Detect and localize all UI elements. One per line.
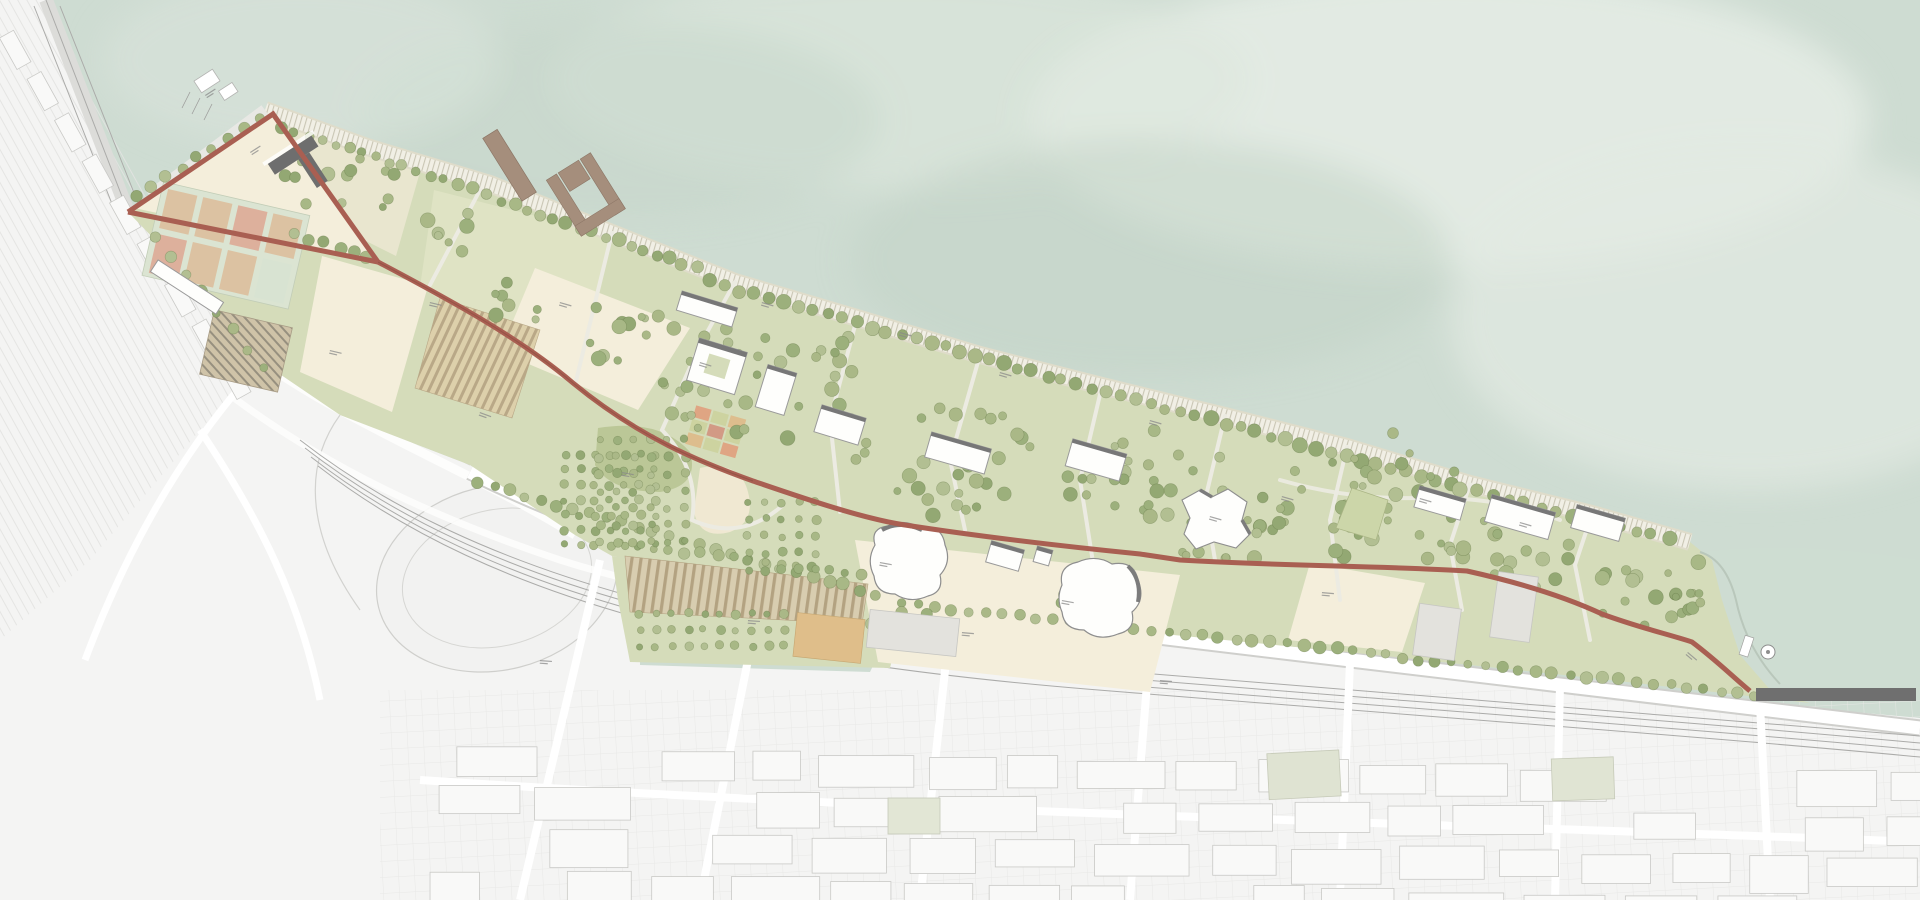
hall-west [870, 522, 947, 599]
city-block [1718, 896, 1797, 900]
city-block [757, 793, 820, 828]
city-block [1499, 850, 1558, 877]
play-court-orange [793, 613, 865, 664]
city-block [1887, 817, 1920, 846]
city-block [939, 797, 1037, 832]
hall-east [1059, 558, 1141, 637]
city-block [1797, 771, 1877, 807]
city-block [1750, 856, 1809, 894]
city-block [713, 835, 792, 864]
city-block [819, 756, 914, 788]
city-block [1199, 804, 1273, 831]
city-block [1409, 893, 1504, 900]
cove-pier-deck [1756, 688, 1916, 701]
city-block [910, 838, 975, 873]
city-block [1400, 846, 1485, 879]
city-block [1436, 764, 1508, 796]
city-block [1071, 886, 1124, 900]
city-block [430, 872, 479, 900]
city-block [904, 884, 972, 900]
city-block [1673, 854, 1730, 883]
city-block [1360, 766, 1426, 794]
museum-building [1182, 489, 1250, 549]
city-block [1213, 845, 1276, 875]
city-block [1634, 813, 1696, 839]
city-block [1095, 845, 1189, 876]
city-block [662, 752, 735, 781]
city-block [1254, 885, 1304, 900]
city-block [1176, 762, 1236, 790]
city-block [1582, 855, 1651, 884]
city-block [439, 785, 520, 813]
city-block [1891, 772, 1920, 800]
city-block [995, 840, 1074, 867]
city-block [989, 885, 1059, 900]
city-block [1295, 802, 1370, 832]
city-block [930, 757, 997, 789]
city-block [1291, 850, 1381, 885]
city-block [1124, 803, 1176, 833]
city-block [1805, 818, 1863, 851]
city-block [535, 788, 631, 821]
city-block [567, 871, 631, 900]
city-block [1007, 756, 1057, 788]
city-block [831, 882, 891, 900]
city-block [652, 877, 714, 900]
lighthouse-center [1766, 650, 1770, 654]
masterplan-canvas [0, 0, 1920, 900]
city-block [1453, 806, 1544, 835]
city-block [1827, 858, 1917, 886]
city-block [731, 877, 819, 900]
city-block [1077, 761, 1165, 788]
city-block [1322, 888, 1394, 900]
city-block [550, 830, 628, 868]
city-block [753, 751, 801, 780]
city-block [1625, 896, 1696, 900]
masterplan-map [0, 0, 1920, 900]
city-block [812, 838, 886, 873]
city-block [1524, 895, 1605, 900]
city-block [457, 747, 537, 777]
city-block [1388, 806, 1441, 836]
